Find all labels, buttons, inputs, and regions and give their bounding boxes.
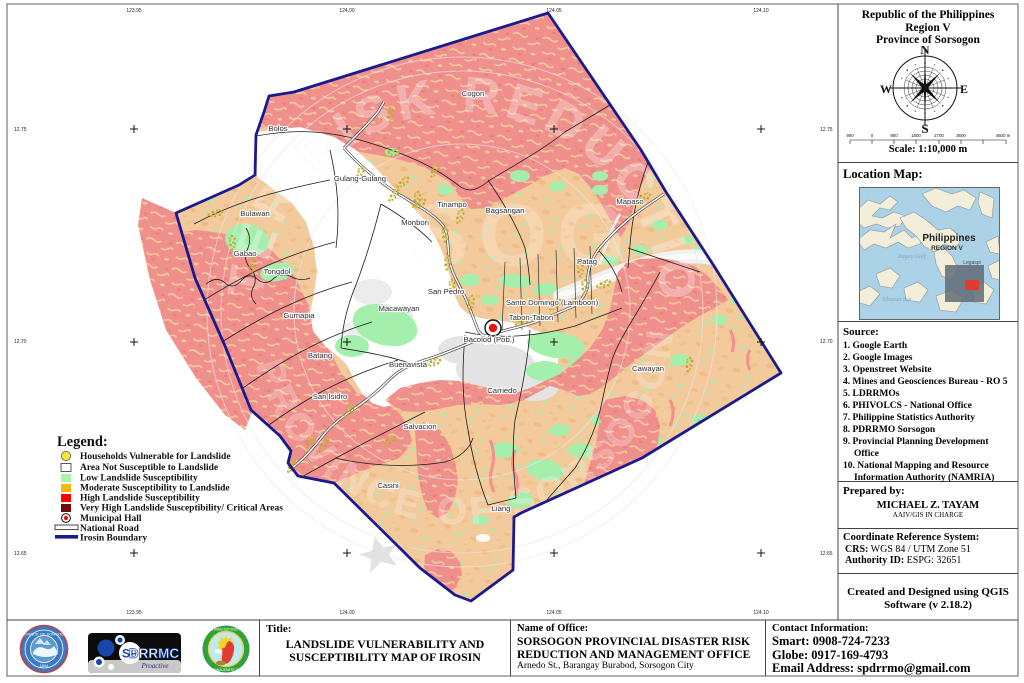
svg-text:900: 900: [846, 133, 854, 138]
svg-text:Cawayan: Cawayan: [632, 364, 664, 373]
svg-text:124.00: 124.00: [339, 8, 355, 14]
svg-text:1800: 1800: [911, 133, 921, 138]
svg-text:12.70: 12.70: [14, 339, 27, 345]
svg-text:Salvacion: Salvacion: [403, 422, 436, 431]
svg-text:Area Not Susceptible to Landsl: Area Not Susceptible to Landslide: [80, 463, 218, 473]
svg-text:Irosin Boundary: Irosin Boundary: [80, 534, 147, 544]
svg-text:Tabon-Tabon: Tabon-Tabon: [509, 313, 553, 322]
svg-text:Mapaso: Mapaso: [616, 197, 643, 206]
svg-text:DRRMC: DRRMC: [129, 646, 179, 661]
svg-text:12.65: 12.65: [820, 551, 833, 557]
svg-text:Proactive: Proactive: [141, 662, 169, 670]
svg-text:Batang: Batang: [308, 351, 332, 360]
svg-text:Bulawan: Bulawan: [240, 209, 270, 218]
svg-text:AND MANAGEMENT OFFICE: AND MANAGEMENT OFFICE: [205, 668, 248, 672]
svg-text:12.65: 12.65: [14, 551, 27, 557]
svg-text:Liang: Liang: [492, 504, 511, 513]
svg-text:Low Landslide Susceptibility: Low Landslide Susceptibility: [80, 474, 198, 484]
svg-text:Macawayan: Macawayan: [378, 304, 419, 313]
svg-text:124.10: 124.10: [753, 8, 769, 14]
svg-text:N: N: [920, 46, 930, 57]
svg-text:E: E: [960, 82, 968, 96]
svg-text:Monbon: Monbon: [401, 218, 429, 227]
svg-text:Patag: Patag: [577, 257, 597, 266]
svg-text:12.70: 12.70: [820, 339, 833, 345]
svg-text:Ragay Gulf: Ragay Gulf: [897, 253, 927, 260]
svg-text:Tongdol: Tongdol: [264, 267, 291, 276]
svg-text:W: W: [880, 82, 892, 96]
svg-text:Sibuyan Sea: Sibuyan Sea: [882, 297, 912, 303]
svg-text:National Road: National Road: [80, 524, 140, 534]
svg-text:San Isidro: San Isidro: [313, 392, 348, 401]
svg-text:Gabao: Gabao: [233, 249, 256, 258]
svg-text:123.95: 123.95: [126, 8, 142, 14]
svg-text:High Landslide Susceptibility: High Landslide Susceptibility: [80, 494, 200, 504]
svg-text:3600: 3600: [956, 133, 966, 138]
svg-text:12.75: 12.75: [14, 127, 27, 133]
svg-text:Very High Landslide Susceptibi: Very High Landslide Susceptibility/ Crit…: [80, 504, 283, 514]
svg-text:PROVINCE OF SORSOGON: PROVINCE OF SORSOGON: [18, 632, 70, 637]
svg-text:1894: 1894: [40, 663, 50, 668]
svg-text:Moderate Susceptibility to Lan: Moderate Susceptibility to Landslide: [80, 484, 230, 494]
svg-text:4500 m: 4500 m: [996, 133, 1011, 138]
svg-text:San Pedro: San Pedro: [428, 287, 464, 296]
svg-text:SORSOGON DISASTER RISK REDUCTI: SORSOGON DISASTER RISK REDUCTION: [194, 628, 258, 632]
svg-text:Casini: Casini: [377, 481, 399, 490]
svg-text:Philippines: Philippines: [922, 233, 976, 244]
svg-text:124.05: 124.05: [546, 610, 562, 616]
svg-text:Households Vulnerable for Land: Households Vulnerable for Landslide: [80, 452, 231, 462]
svg-text:Bolos: Bolos: [268, 124, 287, 133]
svg-text:900: 900: [890, 133, 898, 138]
svg-text:123.95: 123.95: [126, 610, 142, 616]
svg-text:124.05: 124.05: [546, 8, 562, 14]
svg-text:Bacolod (Pob.): Bacolod (Pob.): [464, 335, 515, 344]
svg-text:Cogon: Cogon: [462, 89, 485, 98]
svg-text:Carriedo: Carriedo: [487, 386, 516, 395]
svg-text:12.75: 12.75: [820, 127, 833, 133]
svg-text:Legend:: Legend:: [57, 434, 108, 450]
svg-text:REGION V: REGION V: [931, 245, 963, 252]
svg-text:124.10: 124.10: [753, 610, 769, 616]
svg-text:Buenavista: Buenavista: [389, 360, 428, 369]
svg-text:Gumapia: Gumapia: [283, 311, 315, 320]
svg-text:Tinampo: Tinampo: [437, 200, 467, 209]
svg-text:Bagsangan: Bagsangan: [486, 206, 525, 215]
svg-text:2700: 2700: [934, 133, 944, 138]
svg-text:Municipal Hall: Municipal Hall: [80, 514, 142, 524]
svg-text:0: 0: [871, 133, 874, 138]
svg-text:Santo Domingo (Lamboon): Santo Domingo (Lamboon): [506, 298, 599, 307]
svg-text:124.00: 124.00: [339, 610, 355, 616]
svg-text:Gulang-Gulang: Gulang-Gulang: [334, 174, 386, 183]
